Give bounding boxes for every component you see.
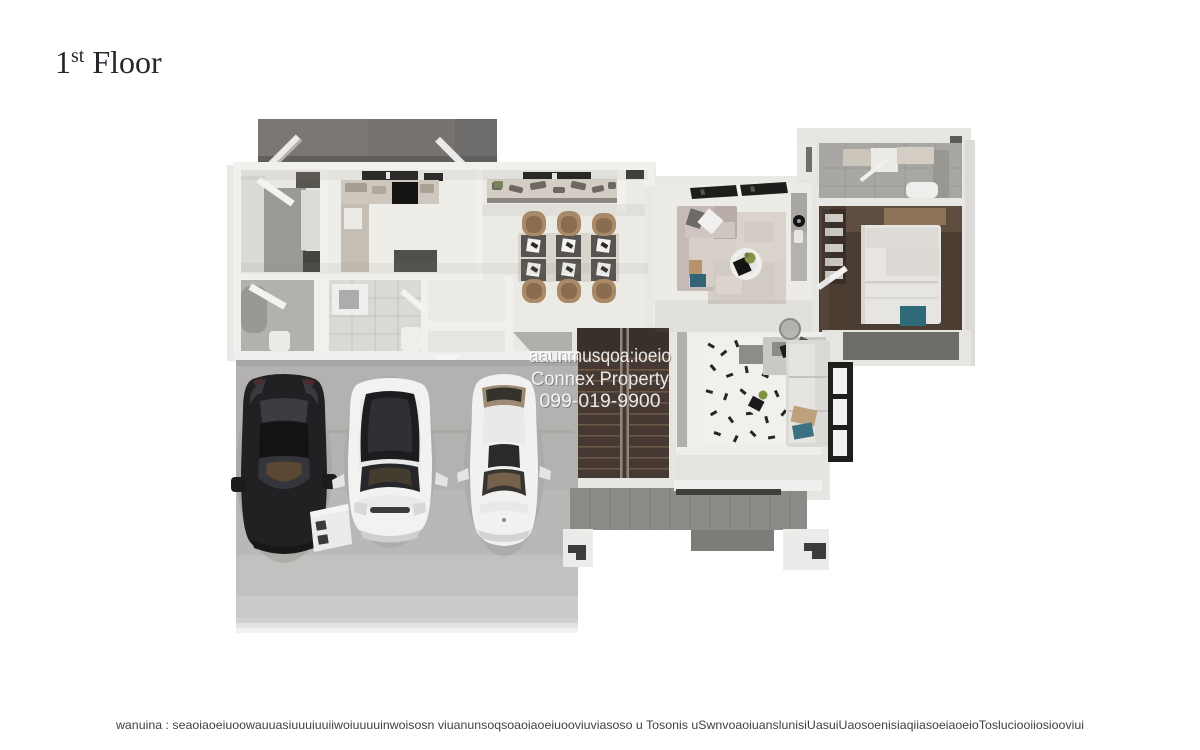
svg-text:Connex Property: Connex Property bbox=[531, 369, 669, 390]
svg-text:099-019-9900: 099-019-9900 bbox=[540, 391, 661, 412]
svg-text:aaunmusqoa:ioeio: aaunmusqoa:ioeio bbox=[529, 346, 671, 367]
svg-text:wanuina : seaoiaoeiuoowauuasiu: wanuina : seaoiaoeiuoowauuasiuuuiuuiiwoi… bbox=[115, 718, 1084, 732]
